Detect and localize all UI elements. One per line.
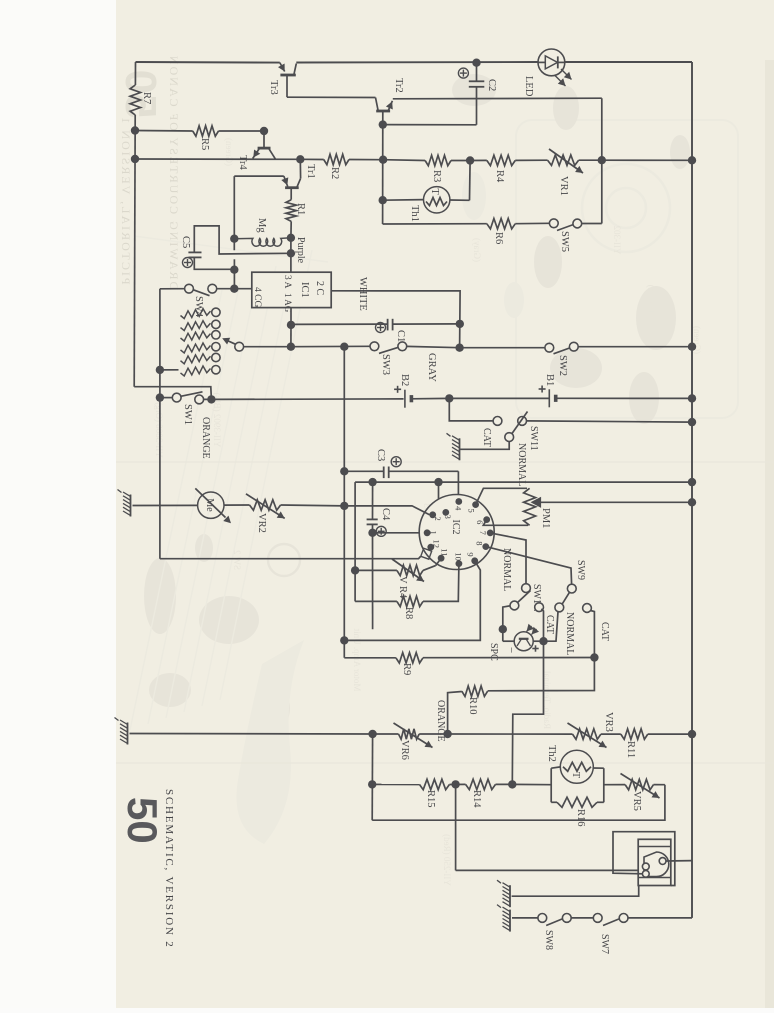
svg-text:IC1: IC1	[299, 282, 310, 298]
svg-text:VR3: VR3	[603, 712, 614, 732]
svg-text:Tr3: Tr3	[268, 80, 279, 95]
svg-text:DRAWING COURTESY OF CANON: DRAWING COURTESY OF CANON	[167, 54, 181, 290]
svg-text:R10: R10	[467, 697, 478, 715]
svg-text:NORMAL: NORMAL	[564, 612, 575, 655]
svg-text:Motor Amp. Unit: Motor Amp. Unit	[352, 628, 362, 691]
svg-text:R9: R9	[401, 663, 412, 675]
svg-text:YII-302: YII-302	[612, 226, 622, 255]
svg-text:Tr1: Tr1	[305, 164, 316, 179]
svg-text:C4: C4	[380, 508, 391, 521]
svg-text:C2: C2	[486, 79, 497, 91]
svg-text:SW3: SW3	[380, 354, 391, 375]
svg-text:Th2: Th2	[546, 745, 557, 762]
svg-text:5: 5	[466, 508, 476, 512]
svg-text:B1: B1	[544, 374, 555, 386]
svg-text:VR2: VR2	[256, 513, 267, 533]
svg-text:CAT: CAT	[599, 622, 610, 641]
svg-text:CAT: CAT	[481, 428, 492, 447]
svg-text:(Green): (Green)	[224, 138, 234, 166]
svg-text:R8: R8	[403, 607, 414, 619]
svg-text:2 C: 2 C	[314, 281, 325, 296]
svg-text:WHITE: WHITE	[357, 277, 368, 311]
svg-text:Tr4: Tr4	[237, 155, 248, 171]
svg-text:11: 11	[440, 548, 450, 556]
svg-text:NORMAL: NORMAL	[516, 443, 527, 486]
svg-text:3: 3	[443, 515, 453, 519]
svg-text:4 CG: 4 CG	[252, 287, 262, 307]
svg-text:Tr2: Tr2	[393, 78, 404, 93]
svg-text:R2: R2	[329, 167, 340, 179]
svg-text:10: 10	[453, 552, 463, 561]
svg-text:VR1: VR1	[558, 176, 569, 196]
svg-text:Th1: Th1	[409, 205, 420, 222]
svg-text:Purple: Purple	[295, 237, 306, 264]
svg-text:SW7: SW7	[599, 934, 610, 954]
svg-text:C5: C5	[180, 236, 191, 248]
svg-text:R4: R4	[494, 170, 505, 183]
svg-text:VR5: VR5	[631, 791, 642, 811]
svg-text:SW2: SW2	[557, 355, 568, 376]
svg-text:PICTORIAL, VERSION 1: PICTORIAL, VERSION 1	[119, 115, 133, 284]
svg-text:50: 50	[116, 70, 165, 119]
svg-text:YII-250 (Red): YII-250 (Red)	[442, 834, 452, 886]
svg-text:NORMAL: NORMAL	[501, 548, 512, 591]
svg-text:SW9: SW9	[575, 560, 586, 580]
svg-text:ORANGE: ORANGE	[200, 417, 211, 459]
svg-text:V R4: V R4	[397, 576, 408, 599]
svg-text:(Gray): (Gray)	[472, 238, 482, 262]
svg-text:50: 50	[119, 797, 166, 844]
svg-text:7: 7	[478, 531, 488, 535]
svg-text:B2: B2	[399, 374, 410, 386]
svg-text:(Brown): (Brown)	[646, 285, 656, 316]
svg-text:SCHEMATIC, VERSION 2: SCHEMATIC, VERSION 2	[163, 789, 175, 949]
svg-text:YII-3806 (Org): YII-3806 (Org)	[154, 402, 164, 458]
svg-text:2: 2	[433, 516, 443, 520]
svg-text:C1: C1	[395, 330, 406, 342]
svg-text:VR6: VR6	[399, 740, 410, 760]
svg-text:R15: R15	[425, 790, 436, 808]
svg-text:IC2: IC2	[450, 520, 461, 535]
svg-text:R5: R5	[199, 138, 210, 150]
svg-text:R7: R7	[141, 92, 152, 104]
svg-text:SW8: SW8	[543, 930, 554, 950]
svg-text:4: 4	[453, 506, 463, 511]
svg-text:LED: LED	[523, 76, 534, 97]
svg-text:R6: R6	[493, 232, 504, 244]
svg-text:Mg: Mg	[256, 218, 267, 233]
svg-text:SW1: SW1	[182, 404, 193, 425]
svg-text:C3: C3	[375, 449, 386, 461]
svg-text:PM1: PM1	[540, 508, 551, 528]
svg-text:T: T	[570, 772, 581, 778]
svg-text:8: 8	[474, 541, 484, 545]
svg-text:R3: R3	[431, 170, 442, 182]
svg-text:CAT: CAT	[544, 615, 555, 634]
svg-text:GRAY: GRAY	[426, 353, 437, 382]
svg-text:SW5: SW5	[559, 231, 570, 252]
svg-text:3 A: 3 A	[282, 275, 292, 289]
svg-text:1: 1	[429, 530, 439, 534]
svg-text:R11: R11	[625, 741, 636, 758]
svg-text:SW 2: SW 2	[232, 550, 242, 570]
svg-text:12: 12	[432, 540, 442, 549]
svg-text:R14: R14	[471, 790, 482, 808]
svg-text:SW11: SW11	[528, 426, 539, 451]
svg-text:T: T	[429, 189, 440, 195]
svg-text:R16: R16	[575, 809, 586, 827]
svg-text:R1: R1	[295, 203, 306, 215]
svg-text:9: 9	[466, 552, 476, 556]
svg-text:−: −	[505, 647, 517, 653]
